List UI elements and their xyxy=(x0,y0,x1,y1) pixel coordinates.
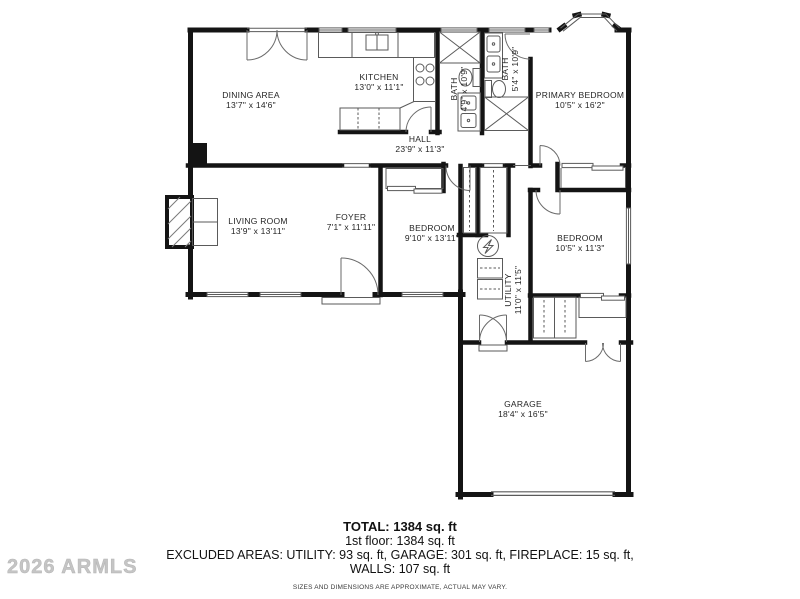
room-dims: 18'4" x 16'5" xyxy=(498,409,548,419)
exterior-walls xyxy=(188,15,631,498)
room-name: BEDROOM xyxy=(409,223,455,233)
room-name: GARAGE xyxy=(504,399,542,409)
room-dims: 10'5" x 11'3" xyxy=(555,243,604,253)
bedroom-mid-door xyxy=(446,166,470,191)
kitchen-window xyxy=(319,28,396,32)
bedroom-mid-window xyxy=(402,292,443,296)
room-label-hall: HALL 23'9" x 11'3" xyxy=(395,134,444,154)
disclaimer-text: SIZES AND DIMENSIONS ARE APPROXIMATE, AC… xyxy=(0,584,800,592)
kitchen-corner-cabinet xyxy=(400,102,436,131)
bath-window-1 xyxy=(441,28,477,32)
stove-icon xyxy=(416,64,434,85)
room-name: BEDROOM xyxy=(557,233,603,243)
room-dims: 4'9" x 10'9" xyxy=(459,67,469,112)
room-label-kitchen: KITCHEN 13'0" x 11'1" xyxy=(354,72,403,92)
hall-linen-closet xyxy=(480,168,507,234)
room-dims: 10'5" x 16'2" xyxy=(555,100,605,110)
room-dims: 13'0" x 11'1" xyxy=(354,82,403,92)
bedroom-mid-closet xyxy=(386,169,443,194)
bath-1-door xyxy=(406,107,431,132)
bath-window-2 xyxy=(489,28,525,32)
room-name: LIVING ROOM xyxy=(228,216,287,226)
room-label-utility: UTILITY 11'0" x 11'5" xyxy=(503,266,523,315)
dining-french-doors xyxy=(247,30,307,60)
first-floor-area-text: 1st floor: 1384 sq. ft xyxy=(0,534,800,548)
total-area-text: TOTAL: 1384 sq. ft xyxy=(0,519,800,534)
floor-plan-page: DINING AREA 13'7" x 14'6" KITCHEN 13'0" … xyxy=(0,0,800,599)
room-label-garage: GARAGE 18'4" x 16'5" xyxy=(498,399,548,419)
washer-dryer-icon xyxy=(478,259,503,300)
kitchen-sink xyxy=(366,32,388,50)
room-dims: 7'1" x 11'11" xyxy=(327,222,376,232)
kitchen-island xyxy=(340,108,400,130)
bay-window xyxy=(561,14,620,31)
room-label-bedroom-mid: BEDROOM 9'10" x 13'11" xyxy=(405,223,459,243)
room-label-bath-1: BATH 4'9" x 10'9" xyxy=(449,67,469,112)
utility-fixtures xyxy=(478,236,503,300)
room-label-dining-area: DINING AREA 13'7" x 14'6" xyxy=(222,90,280,110)
room-name: BATH xyxy=(449,77,459,100)
garage-door xyxy=(491,492,615,496)
bedroom-right-door xyxy=(536,190,560,214)
fireplace-hearth xyxy=(193,199,218,246)
living-room-window-2 xyxy=(260,292,301,296)
room-name: FOYER xyxy=(336,212,367,222)
room-name: HALL xyxy=(409,134,431,144)
armls-watermark: 2026 ARMLS xyxy=(7,556,137,579)
room-dims: 9'10" x 13'11" xyxy=(405,233,459,243)
fireplace xyxy=(167,197,218,247)
bedroom-right-closet xyxy=(579,293,626,317)
room-name: DINING AREA xyxy=(222,90,280,100)
room-dims: 23'9" x 11'3" xyxy=(395,144,444,154)
room-dims: 13'7" x 14'6" xyxy=(226,100,276,110)
primary-closet xyxy=(561,163,626,188)
room-name: BATH xyxy=(500,57,510,80)
bedroom-right-window xyxy=(626,208,630,264)
garage-entry-double-doors xyxy=(586,343,621,362)
room-dims: 5'4" x 10'9" xyxy=(510,47,520,92)
shower-icon-2 xyxy=(485,97,529,131)
water-heater-icon xyxy=(478,236,499,257)
front-door xyxy=(341,258,378,295)
hall-closet-2 xyxy=(534,297,577,338)
room-name: PRIMARY BEDROOM xyxy=(536,90,624,100)
primary-bedroom-window xyxy=(534,28,549,32)
utility-closet xyxy=(464,168,477,234)
room-dims: 11'0" x 11'5" xyxy=(513,266,523,315)
room-name: UTILITY xyxy=(503,273,513,306)
fireplace-hatch xyxy=(168,197,191,247)
windows xyxy=(207,14,631,297)
room-label-foyer: FOYER 7'1" x 11'11" xyxy=(327,212,376,232)
room-label-primary-bedroom: PRIMARY BEDROOM 10'5" x 16'2" xyxy=(536,90,624,110)
room-name: KITCHEN xyxy=(359,72,398,82)
room-dims: 13'9" x 13'11" xyxy=(231,226,285,236)
shower-icon xyxy=(440,32,481,63)
utility-double-doors xyxy=(480,315,507,342)
living-room-window-1 xyxy=(207,292,248,296)
room-label-bath-2: BATH 5'4" x 10'9" xyxy=(500,47,520,92)
room-label-living-room: LIVING ROOM 13'9" x 13'11" xyxy=(228,216,287,236)
room-label-bedroom-right: BEDROOM 10'5" x 11'3" xyxy=(555,233,604,253)
